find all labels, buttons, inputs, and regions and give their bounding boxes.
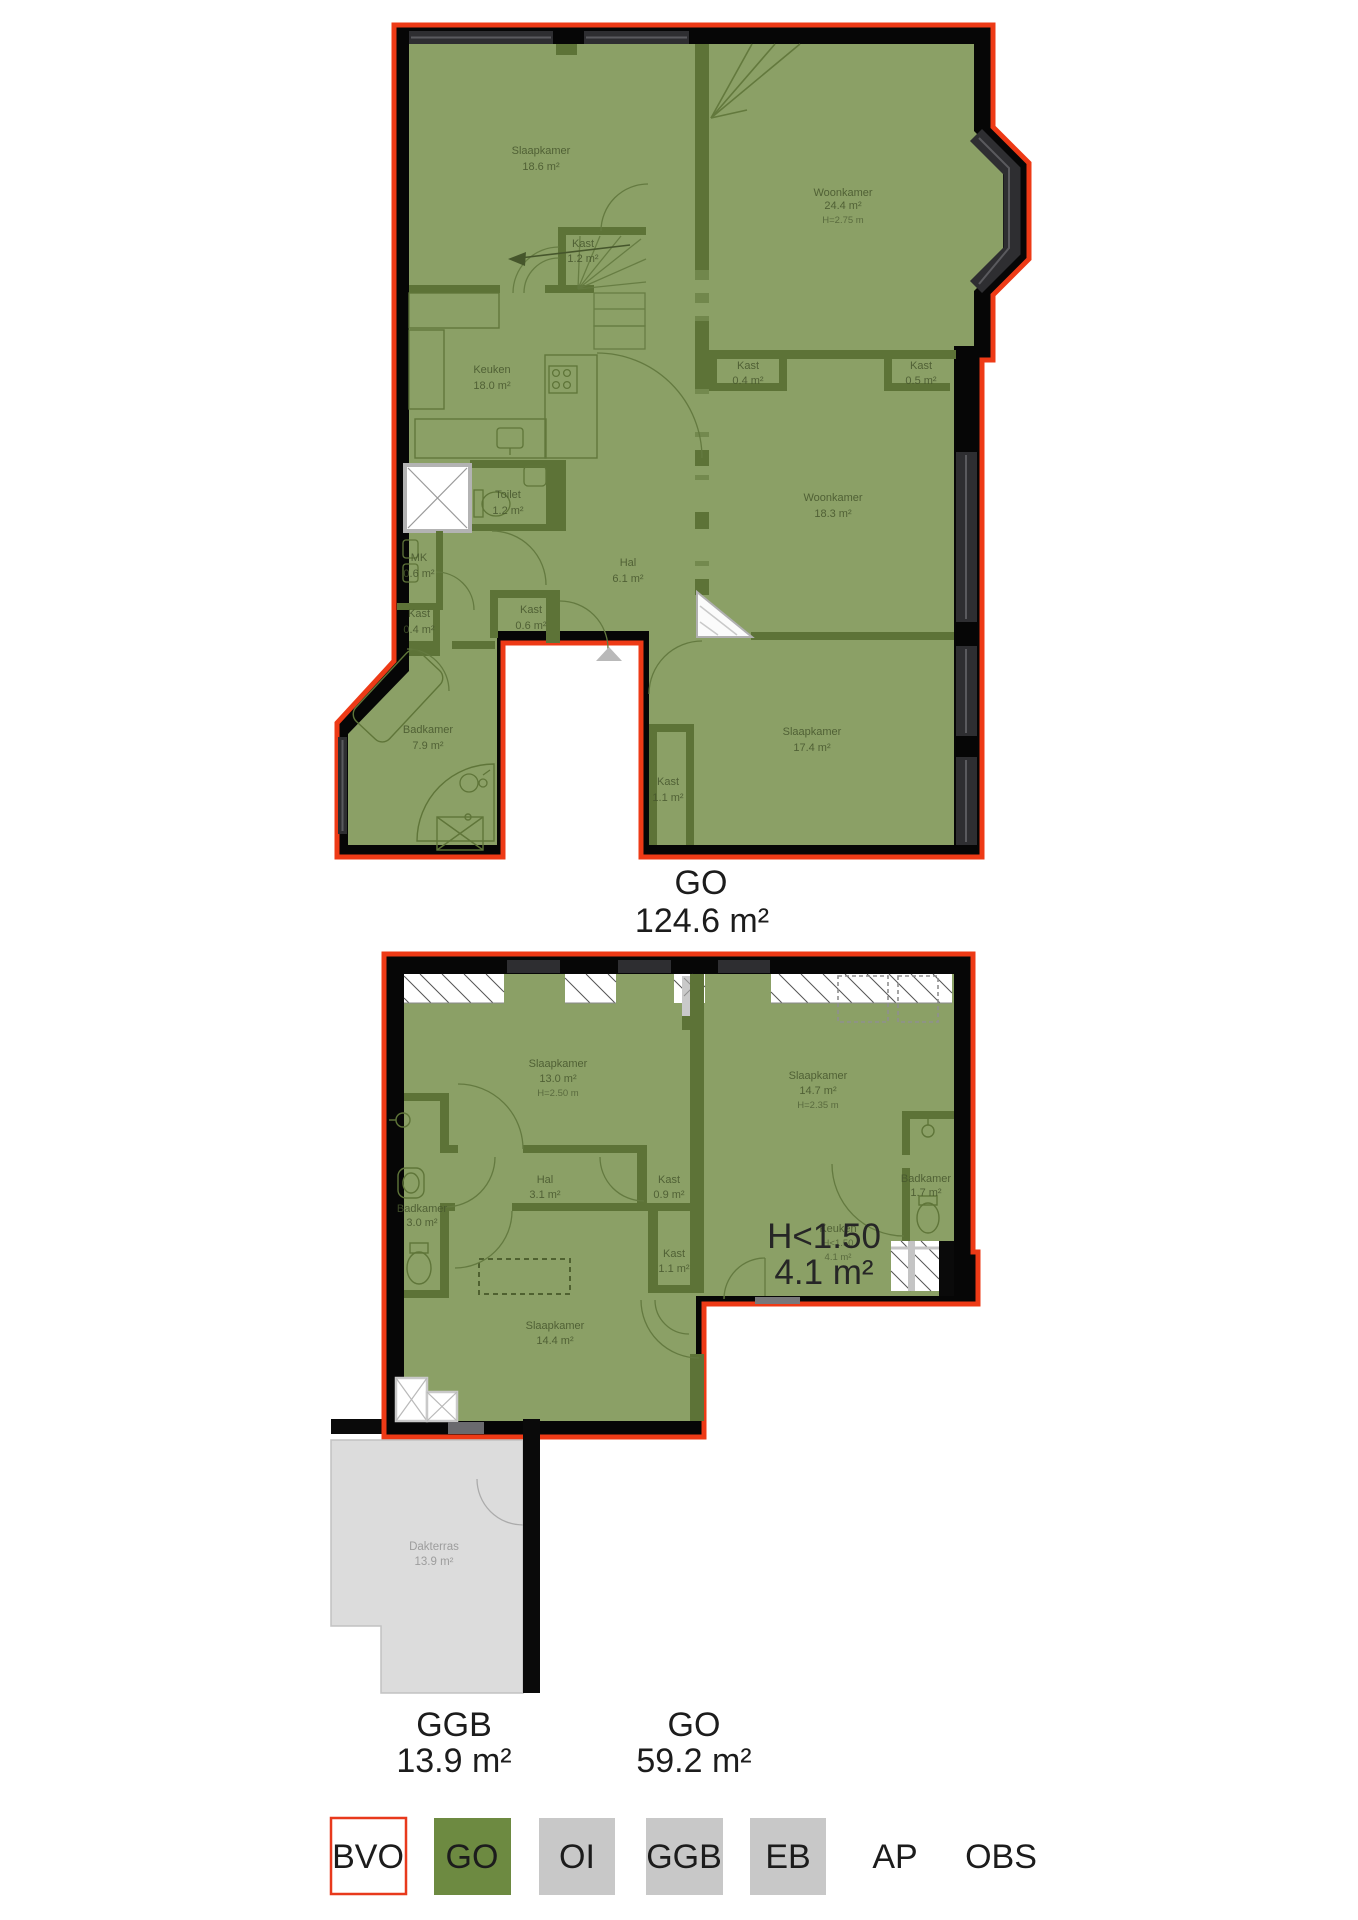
svg-text:Kast: Kast — [572, 238, 594, 250]
svg-text:Dakterras: Dakterras — [409, 1541, 459, 1553]
svg-text:4.1 m²: 4.1 m² — [774, 1253, 873, 1292]
svg-text:3.0 m²: 3.0 m² — [406, 1217, 438, 1229]
svg-text:0.6 m²: 0.6 m² — [403, 568, 435, 580]
svg-text:14.7 m²: 14.7 m² — [799, 1085, 837, 1097]
svg-text:3.1 m²: 3.1 m² — [529, 1189, 561, 1201]
svg-text:0.5 m²: 0.5 m² — [905, 375, 937, 387]
svg-text:18.6 m²: 18.6 m² — [522, 161, 560, 173]
svg-text:EB: EB — [765, 1838, 810, 1876]
svg-text:6.1 m²: 6.1 m² — [612, 573, 644, 585]
svg-text:0.4 m²: 0.4 m² — [403, 624, 435, 636]
svg-text:GO: GO — [668, 1706, 721, 1744]
svg-text:Kast: Kast — [520, 604, 542, 616]
svg-text:GO: GO — [675, 864, 728, 902]
svg-text:Badkamer: Badkamer — [403, 724, 453, 736]
svg-text:GGB: GGB — [646, 1838, 722, 1876]
svg-text:13.0 m²: 13.0 m² — [539, 1073, 577, 1085]
svg-text:H=2.35 m: H=2.35 m — [797, 1100, 839, 1111]
svg-text:24.4 m²: 24.4 m² — [824, 200, 862, 212]
svg-text:Hal: Hal — [537, 1174, 554, 1186]
svg-text:Slaapkamer: Slaapkamer — [783, 726, 842, 738]
svg-text:BVO: BVO — [332, 1838, 404, 1876]
svg-text:Slaapkamer: Slaapkamer — [789, 1070, 848, 1082]
svg-text:1.2 m²: 1.2 m² — [567, 253, 599, 265]
svg-text:Badkamer: Badkamer — [901, 1173, 951, 1185]
svg-text:14.4 m²: 14.4 m² — [536, 1335, 574, 1347]
svg-text:1.7 m²: 1.7 m² — [910, 1187, 942, 1199]
svg-text:Slaapkamer: Slaapkamer — [512, 145, 571, 157]
svg-text:Kast: Kast — [737, 360, 759, 372]
svg-text:OBS: OBS — [965, 1838, 1037, 1876]
svg-text:Woonkamer: Woonkamer — [813, 187, 872, 199]
svg-text:Kast: Kast — [663, 1248, 685, 1260]
svg-text:AP: AP — [872, 1838, 917, 1876]
svg-text:Badkamer: Badkamer — [397, 1203, 447, 1215]
svg-text:0.4 m²: 0.4 m² — [732, 375, 764, 387]
svg-text:GGB: GGB — [416, 1706, 492, 1744]
svg-text:124.6 m²: 124.6 m² — [635, 902, 769, 940]
svg-text:13.9 m²: 13.9 m² — [415, 1556, 454, 1568]
svg-text:Slaapkamer: Slaapkamer — [529, 1058, 588, 1070]
svg-text:GO: GO — [446, 1838, 499, 1876]
svg-text:1.2 m²: 1.2 m² — [492, 505, 524, 517]
svg-text:Hal: Hal — [620, 557, 637, 569]
svg-text:H=2.50 m: H=2.50 m — [537, 1088, 579, 1099]
svg-text:13.9 m²: 13.9 m² — [396, 1742, 511, 1780]
svg-text:18.0 m²: 18.0 m² — [473, 380, 511, 392]
svg-text:MK: MK — [411, 552, 428, 564]
svg-text:0.9 m²: 0.9 m² — [653, 1189, 685, 1201]
svg-text:0.6 m²: 0.6 m² — [515, 620, 547, 632]
svg-text:7.9 m²: 7.9 m² — [412, 740, 444, 752]
svg-text:OI: OI — [559, 1838, 595, 1876]
svg-text:17.4 m²: 17.4 m² — [793, 742, 831, 754]
svg-text:H=2.75 m: H=2.75 m — [822, 215, 864, 226]
svg-text:Kast: Kast — [657, 776, 679, 788]
svg-text:Kast: Kast — [408, 608, 430, 620]
svg-text:59.2 m²: 59.2 m² — [636, 1742, 751, 1780]
svg-text:Slaapkamer: Slaapkamer — [526, 1320, 585, 1332]
svg-text:Keuken: Keuken — [473, 364, 510, 376]
svg-text:H<1.50: H<1.50 — [767, 1217, 881, 1256]
svg-text:18.3 m²: 18.3 m² — [814, 508, 852, 520]
svg-text:Woonkamer: Woonkamer — [803, 492, 862, 504]
svg-text:Toilet: Toilet — [495, 489, 521, 501]
svg-text:Kast: Kast — [910, 360, 932, 372]
svg-text:1.1 m²: 1.1 m² — [658, 1263, 690, 1275]
svg-text:1.1 m²: 1.1 m² — [652, 792, 684, 804]
svg-text:Kast: Kast — [658, 1174, 680, 1186]
